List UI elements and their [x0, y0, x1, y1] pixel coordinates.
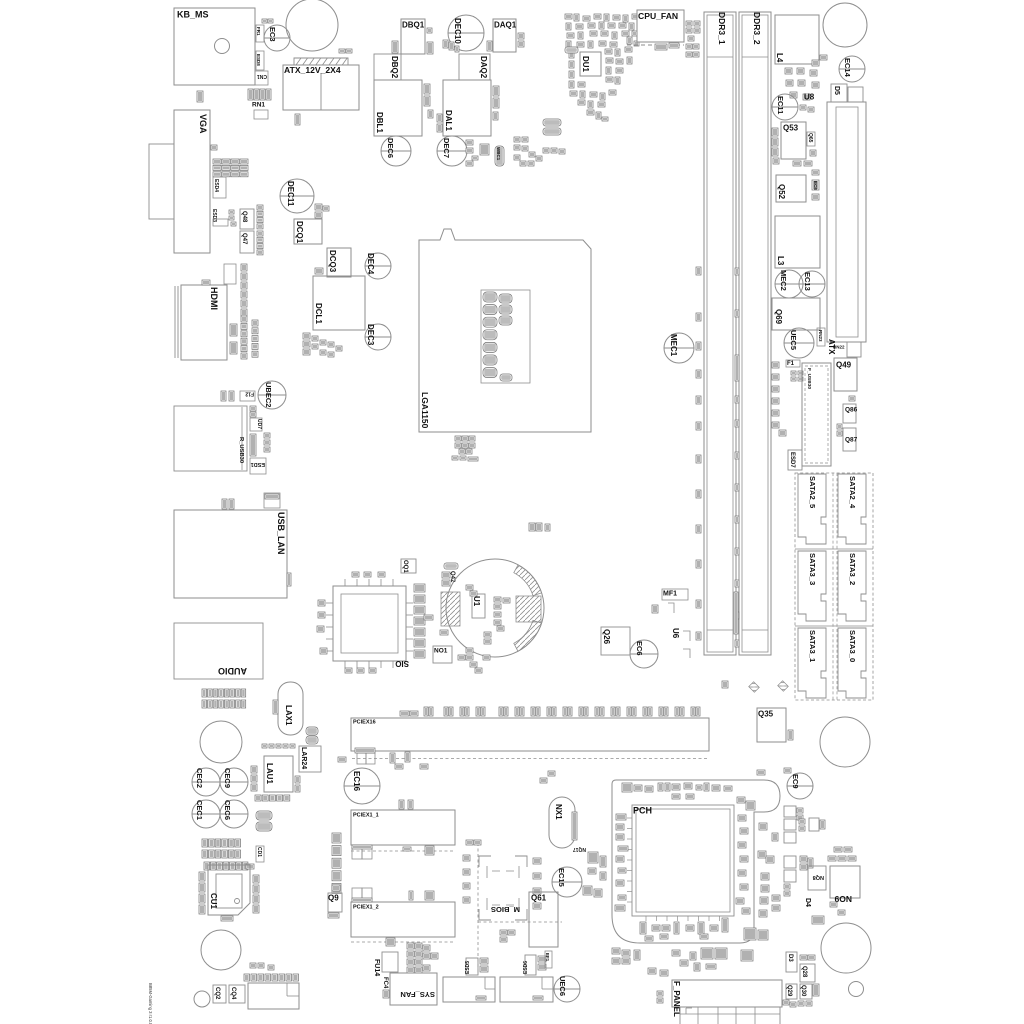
- svg-text:PCH: PCH: [633, 805, 652, 815]
- svg-text:M_BIOS: M_BIOS: [491, 905, 520, 914]
- svg-text:Q29: Q29: [786, 985, 792, 997]
- svg-text:SATA3_0: SATA3_0: [848, 630, 857, 662]
- svg-text:SATA2_5: SATA2_5: [808, 476, 817, 509]
- svg-text:DU1: DU1: [581, 56, 590, 73]
- svg-text:D4: D4: [804, 898, 811, 907]
- svg-text:ESD6: ESD6: [523, 961, 529, 974]
- svg-text:UEC6: UEC6: [558, 976, 567, 996]
- svg-text:UEC5: UEC5: [789, 330, 798, 350]
- svg-text:DEC3: DEC3: [366, 324, 375, 346]
- svg-text:WBC1: WBC1: [496, 147, 501, 161]
- svg-text:RN23: RN23: [818, 330, 823, 342]
- svg-text:PCIEX1_2: PCIEX1_2: [353, 905, 379, 911]
- svg-text:ESD4: ESD4: [213, 179, 219, 192]
- svg-text:U8: U8: [804, 93, 815, 102]
- svg-text:RN1: RN1: [252, 101, 265, 108]
- svg-text:DEC6: DEC6: [386, 138, 395, 158]
- svg-text:SIO: SIO: [395, 659, 409, 668]
- svg-text:DBQ1: DBQ1: [402, 21, 425, 30]
- svg-text:VGA: VGA: [198, 114, 208, 134]
- svg-text:MEC2: MEC2: [779, 270, 788, 291]
- svg-text:R_USB30: R_USB30: [238, 437, 244, 463]
- svg-text:DBL1: DBL1: [375, 112, 384, 133]
- svg-text:Q53: Q53: [783, 124, 799, 133]
- svg-text:L4: L4: [775, 53, 784, 63]
- svg-text:FC4: FC4: [382, 977, 388, 989]
- svg-text:CEC6: CEC6: [223, 800, 232, 820]
- svg-text:CEC2: CEC2: [195, 768, 204, 788]
- svg-text:NQ17: NQ17: [573, 846, 586, 852]
- svg-text:D3: D3: [787, 954, 793, 962]
- svg-text:CPU_FAN: CPU_FAN: [638, 11, 678, 21]
- svg-text:ATX_12V_2X4: ATX_12V_2X4: [284, 65, 341, 75]
- svg-text:SATA3_1: SATA3_1: [808, 630, 817, 663]
- svg-text:Q9: Q9: [328, 894, 339, 903]
- svg-text:DCQ1: DCQ1: [295, 221, 304, 244]
- svg-text:NO1: NO1: [434, 647, 448, 654]
- svg-text:ESD1: ESD1: [251, 461, 265, 467]
- svg-text:DBQ2: DBQ2: [390, 56, 399, 79]
- svg-text:Q65: Q65: [807, 133, 813, 143]
- svg-text:MF1: MF1: [663, 591, 677, 598]
- svg-text:MEC1: MEC1: [669, 334, 678, 357]
- svg-text:ESD7: ESD7: [789, 452, 795, 468]
- svg-text:CEC1: CEC1: [195, 800, 204, 820]
- svg-text:KB_MS: KB_MS: [177, 9, 209, 19]
- svg-text:Q30: Q30: [800, 985, 806, 997]
- svg-text:Q28: Q28: [801, 966, 807, 978]
- svg-text:Q26: Q26: [602, 629, 611, 645]
- svg-text:U6: U6: [671, 628, 680, 639]
- svg-text:DAQ1: DAQ1: [494, 21, 517, 30]
- svg-text:CQ4: CQ4: [230, 987, 236, 1000]
- svg-text:Q48: Q48: [241, 211, 247, 223]
- svg-text:EC8: EC8: [813, 181, 818, 190]
- svg-text:OQ1: OQ1: [402, 560, 408, 573]
- svg-text:DEC7: DEC7: [442, 138, 451, 158]
- svg-text:FU14: FU14: [373, 959, 380, 976]
- svg-text:SATA3_3: SATA3_3: [808, 553, 817, 585]
- svg-text:Q52: Q52: [777, 184, 786, 200]
- svg-text:CEC9: CEC9: [223, 768, 232, 788]
- svg-text:ESD5: ESD5: [465, 961, 471, 974]
- svg-text:EC11: EC11: [776, 96, 785, 114]
- svg-text:HDMI: HDMI: [209, 287, 219, 310]
- svg-text:EC6: EC6: [635, 641, 644, 656]
- svg-text:DAQ2: DAQ2: [479, 56, 488, 79]
- svg-text:DAL1: DAL1: [444, 110, 453, 131]
- svg-text:Q35: Q35: [758, 710, 774, 719]
- svg-text:U1: U1: [472, 596, 481, 607]
- svg-text:Q49: Q49: [836, 361, 852, 370]
- svg-text:SYS_FAN: SYS_FAN: [400, 990, 435, 999]
- svg-text:LAX1: LAX1: [284, 705, 293, 726]
- svg-text:DEC11: DEC11: [286, 181, 295, 207]
- svg-text:F12: F12: [245, 391, 254, 397]
- svg-text:LAU1: LAU1: [265, 763, 274, 784]
- svg-text:FR1: FR1: [256, 27, 261, 36]
- svg-text:NQ8: NQ8: [813, 874, 824, 880]
- svg-text:DDR3_1: DDR3_1: [717, 12, 727, 45]
- svg-text:EC3: EC3: [268, 27, 277, 42]
- svg-text:EF1: EF1: [545, 953, 550, 962]
- svg-text:PCIEX16: PCIEX16: [353, 720, 376, 726]
- svg-text:EC16: EC16: [352, 771, 361, 792]
- svg-text:DEC4: DEC4: [366, 253, 375, 275]
- svg-text:DDR3_2: DDR3_2: [752, 12, 762, 45]
- svg-text:CU1: CU1: [209, 893, 218, 910]
- svg-text:CN1: CN1: [257, 73, 267, 79]
- svg-text:SATA2_4: SATA2_4: [848, 476, 857, 509]
- svg-text:F_USB30: F_USB30: [806, 368, 812, 389]
- svg-text:USB_LAN: USB_LAN: [276, 512, 286, 555]
- svg-text:D5: D5: [833, 86, 840, 95]
- svg-text:Q69: Q69: [774, 309, 783, 325]
- svg-text:SATA3_2: SATA3_2: [848, 553, 857, 585]
- svg-text:LGA1150: LGA1150: [420, 392, 430, 429]
- svg-text:DEC10: DEC10: [453, 18, 462, 44]
- svg-text:EC9: EC9: [791, 774, 800, 789]
- svg-text:Q86: Q86: [845, 406, 858, 413]
- svg-text:NX1: NX1: [554, 804, 563, 820]
- svg-text:ESD3: ESD3: [211, 209, 217, 222]
- svg-text:AUDIO: AUDIO: [218, 666, 247, 676]
- svg-text:ESD8: ESD8: [256, 54, 261, 66]
- svg-text:Q87: Q87: [845, 436, 858, 443]
- svg-text:Q61: Q61: [531, 894, 547, 903]
- svg-text:PCIEX1_1: PCIEX1_1: [353, 813, 379, 819]
- svg-text:L3: L3: [776, 256, 785, 266]
- svg-text:LAR24: LAR24: [300, 747, 307, 769]
- svg-text:Q47: Q47: [241, 233, 247, 245]
- svg-text:CQ2: CQ2: [214, 987, 220, 1000]
- svg-text:UD7: UD7: [256, 419, 262, 429]
- svg-text:EC13: EC13: [803, 272, 812, 291]
- svg-text:CD1: CD1: [256, 847, 262, 857]
- svg-text:EC14: EC14: [843, 58, 852, 78]
- svg-text:EC15: EC15: [557, 868, 566, 887]
- svg-text:UBEC2: UBEC2: [264, 382, 273, 407]
- svg-text:F1: F1: [787, 361, 795, 367]
- svg-text:DCQ3: DCQ3: [328, 250, 337, 273]
- svg-text:B85M-Gaming 3 r1.0.0d: B85M-Gaming 3 r1.0.0d: [148, 983, 153, 1024]
- svg-text:DCL1: DCL1: [314, 303, 323, 324]
- svg-text:RN22: RN22: [833, 345, 845, 350]
